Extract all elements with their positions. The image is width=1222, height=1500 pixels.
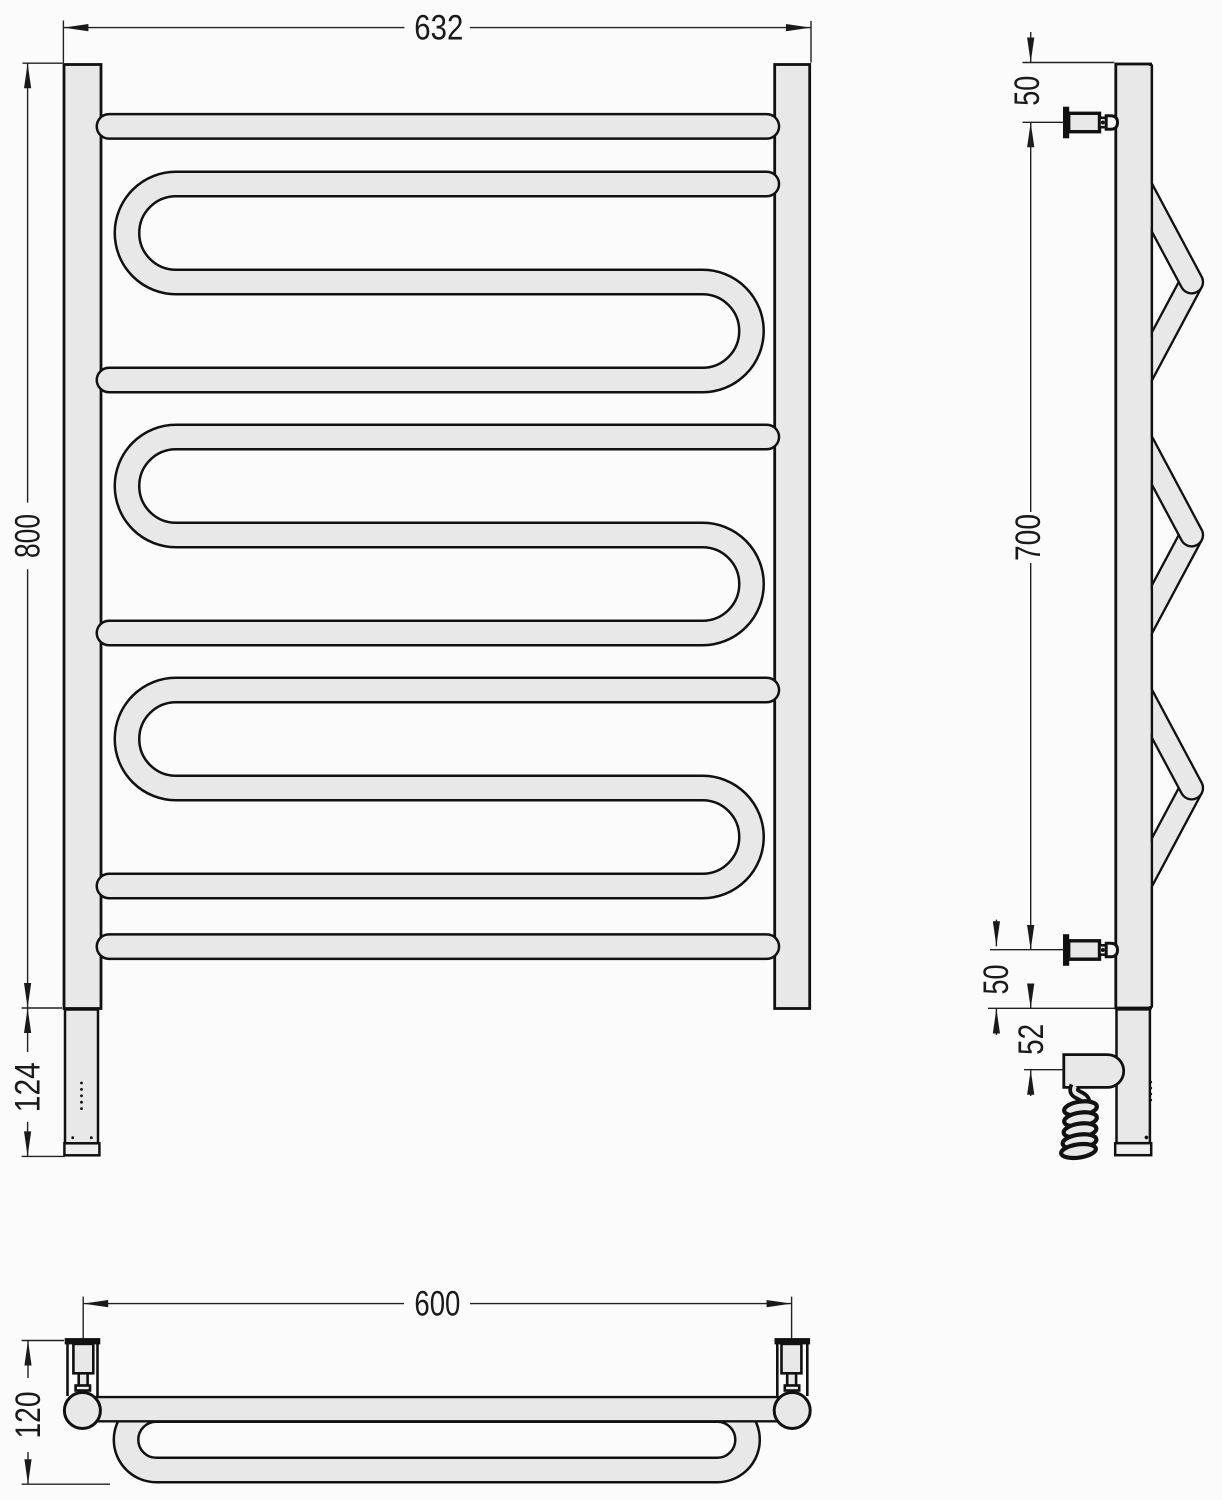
svg-text:120: 120 <box>8 1392 48 1439</box>
svg-text:52: 52 <box>1011 1024 1051 1055</box>
svg-text:700: 700 <box>1008 514 1048 561</box>
svg-text:124: 124 <box>8 1062 48 1112</box>
svg-text:600: 600 <box>414 1284 460 1324</box>
svg-text:800: 800 <box>8 514 48 558</box>
svg-text:632: 632 <box>414 8 463 48</box>
svg-text:50: 50 <box>976 965 1016 995</box>
svg-text:50: 50 <box>1007 76 1047 106</box>
